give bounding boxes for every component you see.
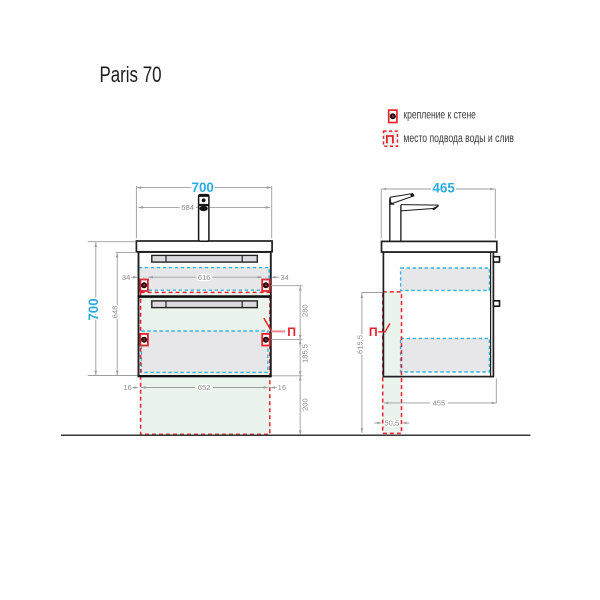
svg-text:П: П bbox=[287, 325, 296, 339]
svg-text:684: 684 bbox=[181, 203, 194, 212]
svg-text:16: 16 bbox=[278, 383, 286, 392]
svg-text:465: 465 bbox=[432, 180, 455, 195]
svg-text:крепление к стене: крепление к стене bbox=[403, 110, 476, 122]
svg-text:185,5: 185,5 bbox=[301, 344, 310, 363]
svg-text:615,5: 615,5 bbox=[355, 335, 364, 354]
svg-text:34: 34 bbox=[122, 273, 130, 282]
svg-text:652: 652 bbox=[198, 383, 211, 392]
svg-text:280: 280 bbox=[301, 304, 310, 317]
svg-text:П: П bbox=[369, 325, 378, 339]
svg-text:616: 616 bbox=[198, 273, 211, 282]
svg-text:Paris 70: Paris 70 bbox=[100, 62, 162, 87]
svg-text:50,5: 50,5 bbox=[384, 419, 399, 428]
svg-text:200: 200 bbox=[301, 398, 310, 411]
svg-text:700: 700 bbox=[192, 180, 214, 195]
svg-text:455: 455 bbox=[433, 399, 446, 408]
svg-text:34: 34 bbox=[280, 273, 288, 282]
svg-text:место подвода воды и слив: место подвода воды и слив bbox=[403, 133, 514, 145]
svg-text:700: 700 bbox=[86, 298, 101, 320]
svg-text:648: 648 bbox=[111, 306, 120, 319]
svg-text:16: 16 bbox=[123, 383, 131, 392]
